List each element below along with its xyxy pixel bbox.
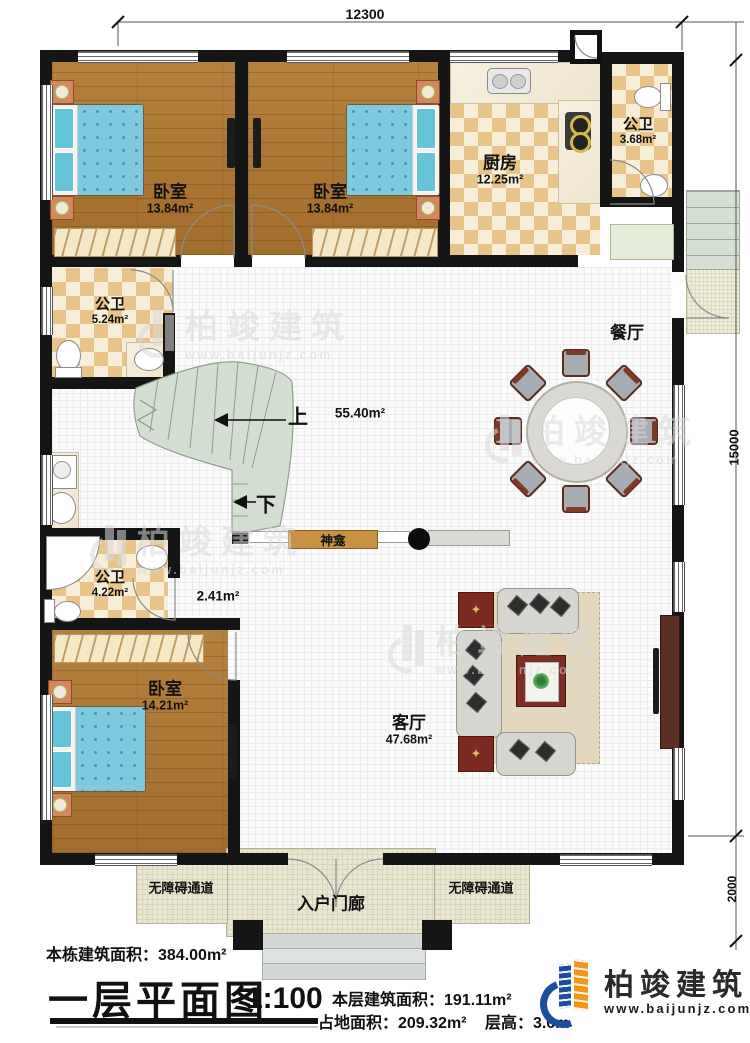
side-exterior-stairs [686, 190, 740, 270]
bed-mattress [76, 707, 145, 791]
wall-bath-top-bottom [600, 197, 684, 207]
tv-bedroom2 [253, 118, 261, 168]
porch-label: 入户门廊 [297, 890, 365, 915]
window [41, 85, 53, 200]
wall-right-upper [672, 52, 684, 205]
window [78, 51, 198, 63]
bed [48, 706, 146, 792]
logo-name: 柏竣建筑 [604, 970, 750, 1002]
bath-sink [136, 545, 168, 570]
dim-top: 12300 [346, 6, 385, 22]
bath-sink [134, 348, 164, 371]
tv-cabinet [660, 615, 680, 749]
wall-bedroom-divider [235, 62, 248, 255]
ramp-right-label: 无障碍通道 [448, 878, 513, 897]
wall-bath-mid-bottom [40, 377, 232, 389]
porch-column-right [422, 920, 452, 950]
bed [50, 104, 144, 196]
wardrobe [312, 228, 438, 257]
dining-label: 餐厅 [610, 319, 644, 344]
wall-bath-mid-right [163, 313, 175, 377]
window [287, 51, 409, 63]
flue-box [570, 30, 602, 64]
stove [565, 112, 591, 150]
window [673, 562, 685, 612]
bed [346, 104, 440, 196]
bedroom3-label: 卧室 14.21m² [142, 679, 189, 712]
entry-step-3 [262, 963, 426, 980]
stair-up-label: 上 [288, 401, 308, 430]
kitchen-label: 厨房 12.25m² [477, 153, 524, 186]
bath-sink [640, 174, 668, 197]
toilet-tank [55, 367, 82, 378]
window [673, 385, 685, 505]
side-table: ✦ [458, 736, 494, 772]
kitchen-sink [487, 68, 531, 94]
stair-down-label: 下 [256, 489, 276, 518]
wall-bath-low-right [168, 540, 180, 578]
half-wall-living [428, 530, 510, 546]
porch-column-left [233, 920, 263, 950]
nightstand [50, 196, 74, 220]
side-table: ✦ [458, 592, 494, 628]
nightstand [416, 196, 440, 220]
window [560, 854, 652, 866]
scale-text: 1:100 [246, 982, 323, 1016]
building-area-text: 本栋建筑面积：384.00m² [46, 941, 227, 965]
title-underline [50, 1018, 318, 1024]
dining-chair [494, 417, 522, 445]
bath-mid-label: 公卫 5.24m² [92, 297, 128, 327]
bed-pillows [412, 105, 439, 195]
shrine-label: 神龛 [320, 530, 345, 549]
wall-pier [234, 255, 252, 267]
window [41, 695, 53, 820]
living-label: 客厅 47.68m² [386, 713, 433, 746]
floor-plan: 柏竣建筑 www.baijunjz.com 柏竣建筑 www.baijunjz.… [0, 0, 750, 1043]
corridor-area-label: 2.41m² [197, 589, 240, 604]
title-underline-shadow [56, 1026, 318, 1028]
dim-right: 15000 [727, 418, 742, 478]
ramp-left-label: 无障碍通道 [148, 878, 213, 897]
dining-table-top [542, 397, 610, 465]
nightstand [416, 80, 440, 104]
dining-chair [562, 485, 590, 513]
shrine-cabinet: 神龛 [288, 530, 378, 549]
bath-low-label: 公卫 4.22m² [92, 570, 128, 600]
toilet-bowl [54, 601, 81, 622]
bed-pillows [49, 707, 76, 791]
side-door-landing [686, 268, 740, 334]
window [41, 455, 53, 525]
bed-mattress [347, 105, 412, 195]
land-area-line: 占地面积：209.32m² 层高：3.6m [318, 1009, 569, 1033]
window [95, 854, 177, 866]
land-area-text: 占地面积：209.32m² [318, 1015, 467, 1032]
dim-bottom-right: 2000 [725, 859, 739, 919]
wardrobe [54, 228, 176, 257]
hall-area-label: 55.40m² [335, 406, 385, 421]
toilet-tank [660, 83, 671, 111]
window [41, 287, 53, 335]
bed-mattress [78, 105, 143, 195]
coffee-table [516, 655, 566, 707]
toilet-bowl [634, 86, 662, 108]
bedroom1-label: 卧室 13.84m² [147, 182, 194, 215]
dining-chair [562, 349, 590, 377]
company-logo: 柏竣建筑 www.baijunjz.com [540, 956, 750, 1030]
wardrobe [54, 634, 204, 663]
bedroom2-label: 卧室 13.84m² [307, 182, 354, 215]
dining-chair [630, 417, 658, 445]
window [673, 748, 685, 800]
floor-area-text: 本层建筑面积：191.11m² [332, 986, 512, 1010]
nightstand [50, 80, 74, 104]
bath-top-label: 公卫 3.68m² [620, 117, 656, 147]
tv-bedroom1 [227, 118, 235, 168]
column-dot [408, 528, 430, 550]
logo-building-icon [540, 956, 598, 1030]
tv-living [653, 648, 659, 714]
wall-kitchen-bath [600, 62, 612, 197]
bed-pillows [51, 105, 78, 195]
wall-pier-shrine [232, 528, 248, 544]
window [450, 51, 558, 63]
fridge-cabinet [610, 224, 674, 260]
wall-kitchen-bottom [450, 255, 578, 267]
tv-bedroom3 [229, 724, 237, 778]
logo-url: www.baijunjz.com [604, 1001, 750, 1016]
